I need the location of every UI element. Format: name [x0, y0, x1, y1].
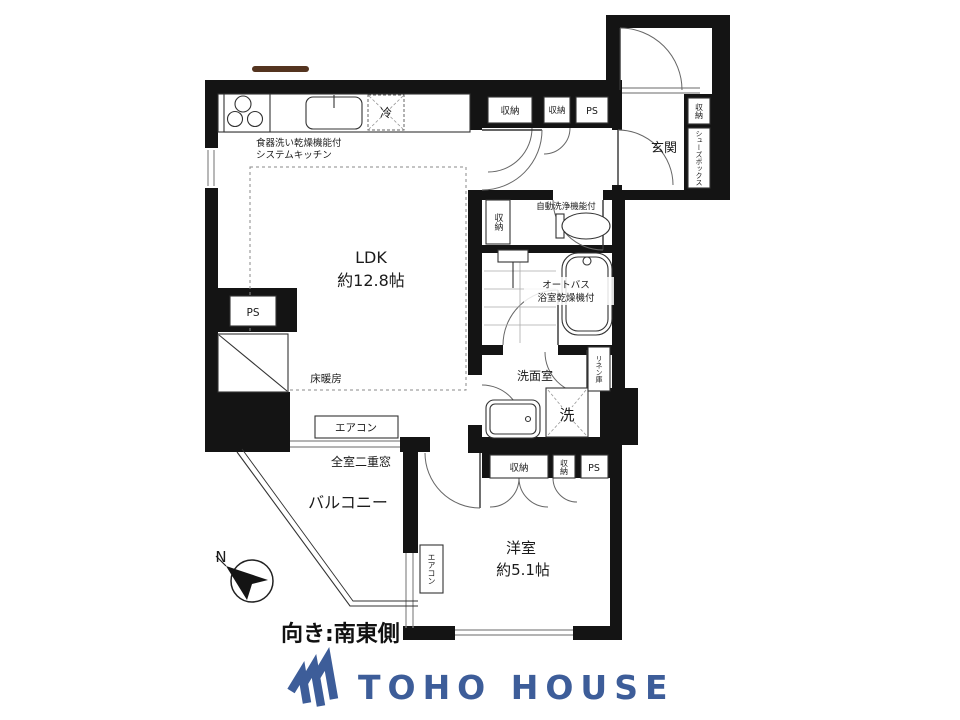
storage-label: 収納: [500, 105, 519, 117]
fridge-label: 冷: [380, 106, 392, 120]
linen-label: リネン庫: [588, 347, 610, 391]
brand-wordmark: TOHO HOUSE: [358, 668, 675, 707]
compass-needle: [226, 566, 268, 600]
ldk-size-label: 約12.8帖: [337, 271, 405, 290]
ps-label: PS: [586, 106, 598, 117]
floor-heating-label: 床暖房: [310, 372, 342, 385]
floor-plan-drawing: 冷 食器洗い乾燥機能付 システムキッチン LDK 約12.8帖 床暖房 PS エ…: [0, 0, 960, 720]
ps-label: PS: [247, 307, 260, 319]
ps-label: PS: [588, 463, 600, 474]
closet-door-arc: [488, 128, 532, 172]
shoe-box-label: シューズボックス: [688, 128, 710, 188]
toilet-note: 自動洗浄機能付: [536, 201, 596, 212]
tub-faucet: [583, 257, 591, 265]
closet-door-arc: [490, 478, 519, 507]
washroom-label: 洗面室: [517, 368, 553, 383]
washer-label: 洗: [559, 406, 574, 424]
brand-logo-mark: [291, 659, 334, 706]
aircon-label-west: エアコン: [420, 545, 443, 593]
closet-door-arc: [519, 478, 548, 507]
ldk-door-arc: [482, 130, 542, 190]
double-window-note: 全室二重窓: [331, 454, 391, 469]
ldk-label: LDK: [355, 248, 387, 267]
auto-bath-note2: 浴室乾燥機付: [537, 292, 595, 304]
balcony-label: バルコニー: [308, 493, 388, 512]
compass: N: [215, 548, 273, 602]
floor-plan-page: 冷 食器洗い乾燥機能付 システムキッチン LDK 約12.8帖 床暖房 PS エ…: [0, 0, 960, 720]
balcony-outline: [237, 449, 418, 606]
storage-label: 収納: [548, 105, 565, 116]
shower-fixture: [498, 250, 528, 262]
storage-label: 収納: [486, 200, 510, 244]
closet-door-arc: [553, 478, 577, 502]
storage-label: 収納: [553, 455, 575, 478]
artifact-line: [252, 66, 309, 72]
west-room-size-label: 約5.1帖: [496, 561, 550, 579]
storage-label: 収納: [688, 98, 710, 124]
aircon-label-ldk: エアコン: [335, 422, 377, 434]
vanity-sink: [486, 400, 540, 438]
washer-space: 洗: [546, 388, 588, 437]
facing-note: 向き:南東側: [281, 616, 400, 648]
west-room-door-arc: [425, 453, 480, 508]
storage-label: 収納: [509, 462, 528, 474]
closet-door-arc: [544, 128, 570, 154]
entrance-label: 玄関: [651, 141, 677, 156]
kitchen-note-line1: 食器洗い乾燥機能付: [256, 137, 342, 149]
bathroom: オートバス 浴室乾燥機付: [484, 250, 614, 343]
vanity-faucet: [526, 417, 531, 422]
auto-bath-note1: オートバス: [542, 280, 590, 291]
genkan-door-arc: [618, 130, 673, 185]
toilet-bowl: [562, 213, 610, 239]
entrance-door-arc: [620, 28, 682, 90]
kitchen-note-line2: システムキッチン: [256, 150, 332, 161]
west-room-label: 洋室: [506, 539, 536, 557]
compass-north-label: N: [215, 548, 226, 566]
kitchen-counter: 冷: [218, 94, 470, 132]
